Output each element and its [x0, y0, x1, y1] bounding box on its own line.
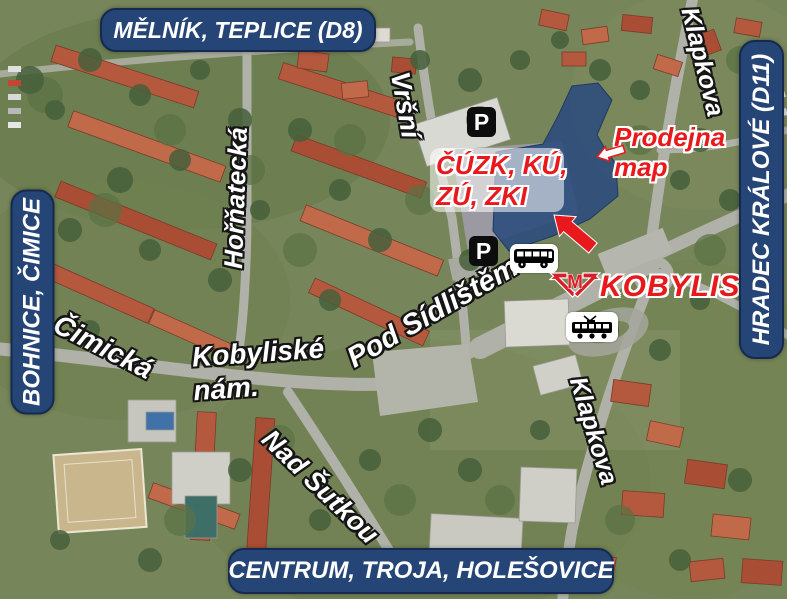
tram-stop-icon	[566, 312, 618, 342]
parking-letter: P	[476, 238, 491, 265]
map-screenshot: ČÚZK, KÚ, ZÚ, ZKI Vršní Hořňatecká Čimic…	[0, 0, 787, 599]
parking-letter: P	[474, 109, 489, 136]
map-shop-label-line1: Prodejna	[614, 122, 725, 152]
office-label-line1: ČÚZK, KÚ,	[436, 150, 567, 181]
metro-logo-letter: M	[567, 272, 583, 293]
street-label-hornatecka: Hořňatecká	[218, 127, 254, 270]
street-label-kobyliske-nam-line2: nám.	[192, 371, 259, 407]
parking-icon-north: P	[467, 107, 496, 137]
sign-east-hradec-kralove: HRADEC KRÁLOVÉ (D11)	[739, 40, 784, 359]
map-shop-label-line2: map	[614, 152, 725, 182]
metro-logo-icon: M	[549, 266, 601, 298]
metro-station-label: KOBYLISY	[600, 270, 761, 304]
sign-north-melnik-teplice: MĚLNÍK, TEPLICE (D8)	[100, 8, 376, 52]
tram-glyph	[569, 315, 615, 339]
office-label: ČÚZK, KÚ, ZÚ, ZKI	[436, 150, 567, 212]
sign-south-centrum-troja-holesovice: CENTRUM, TROJA, HOLEŠOVICE	[228, 548, 614, 594]
map-shop-pointer-arrow-icon	[595, 143, 627, 165]
sign-west-bohnice-cimice: BOHNICE, ČIMICE	[11, 190, 55, 415]
building-pointer-arrow-icon	[551, 212, 599, 256]
map-shop-label: Prodejna map	[614, 122, 725, 182]
parking-icon-south: P	[469, 236, 498, 266]
office-label-line2: ZÚ, ZKI	[436, 181, 567, 212]
